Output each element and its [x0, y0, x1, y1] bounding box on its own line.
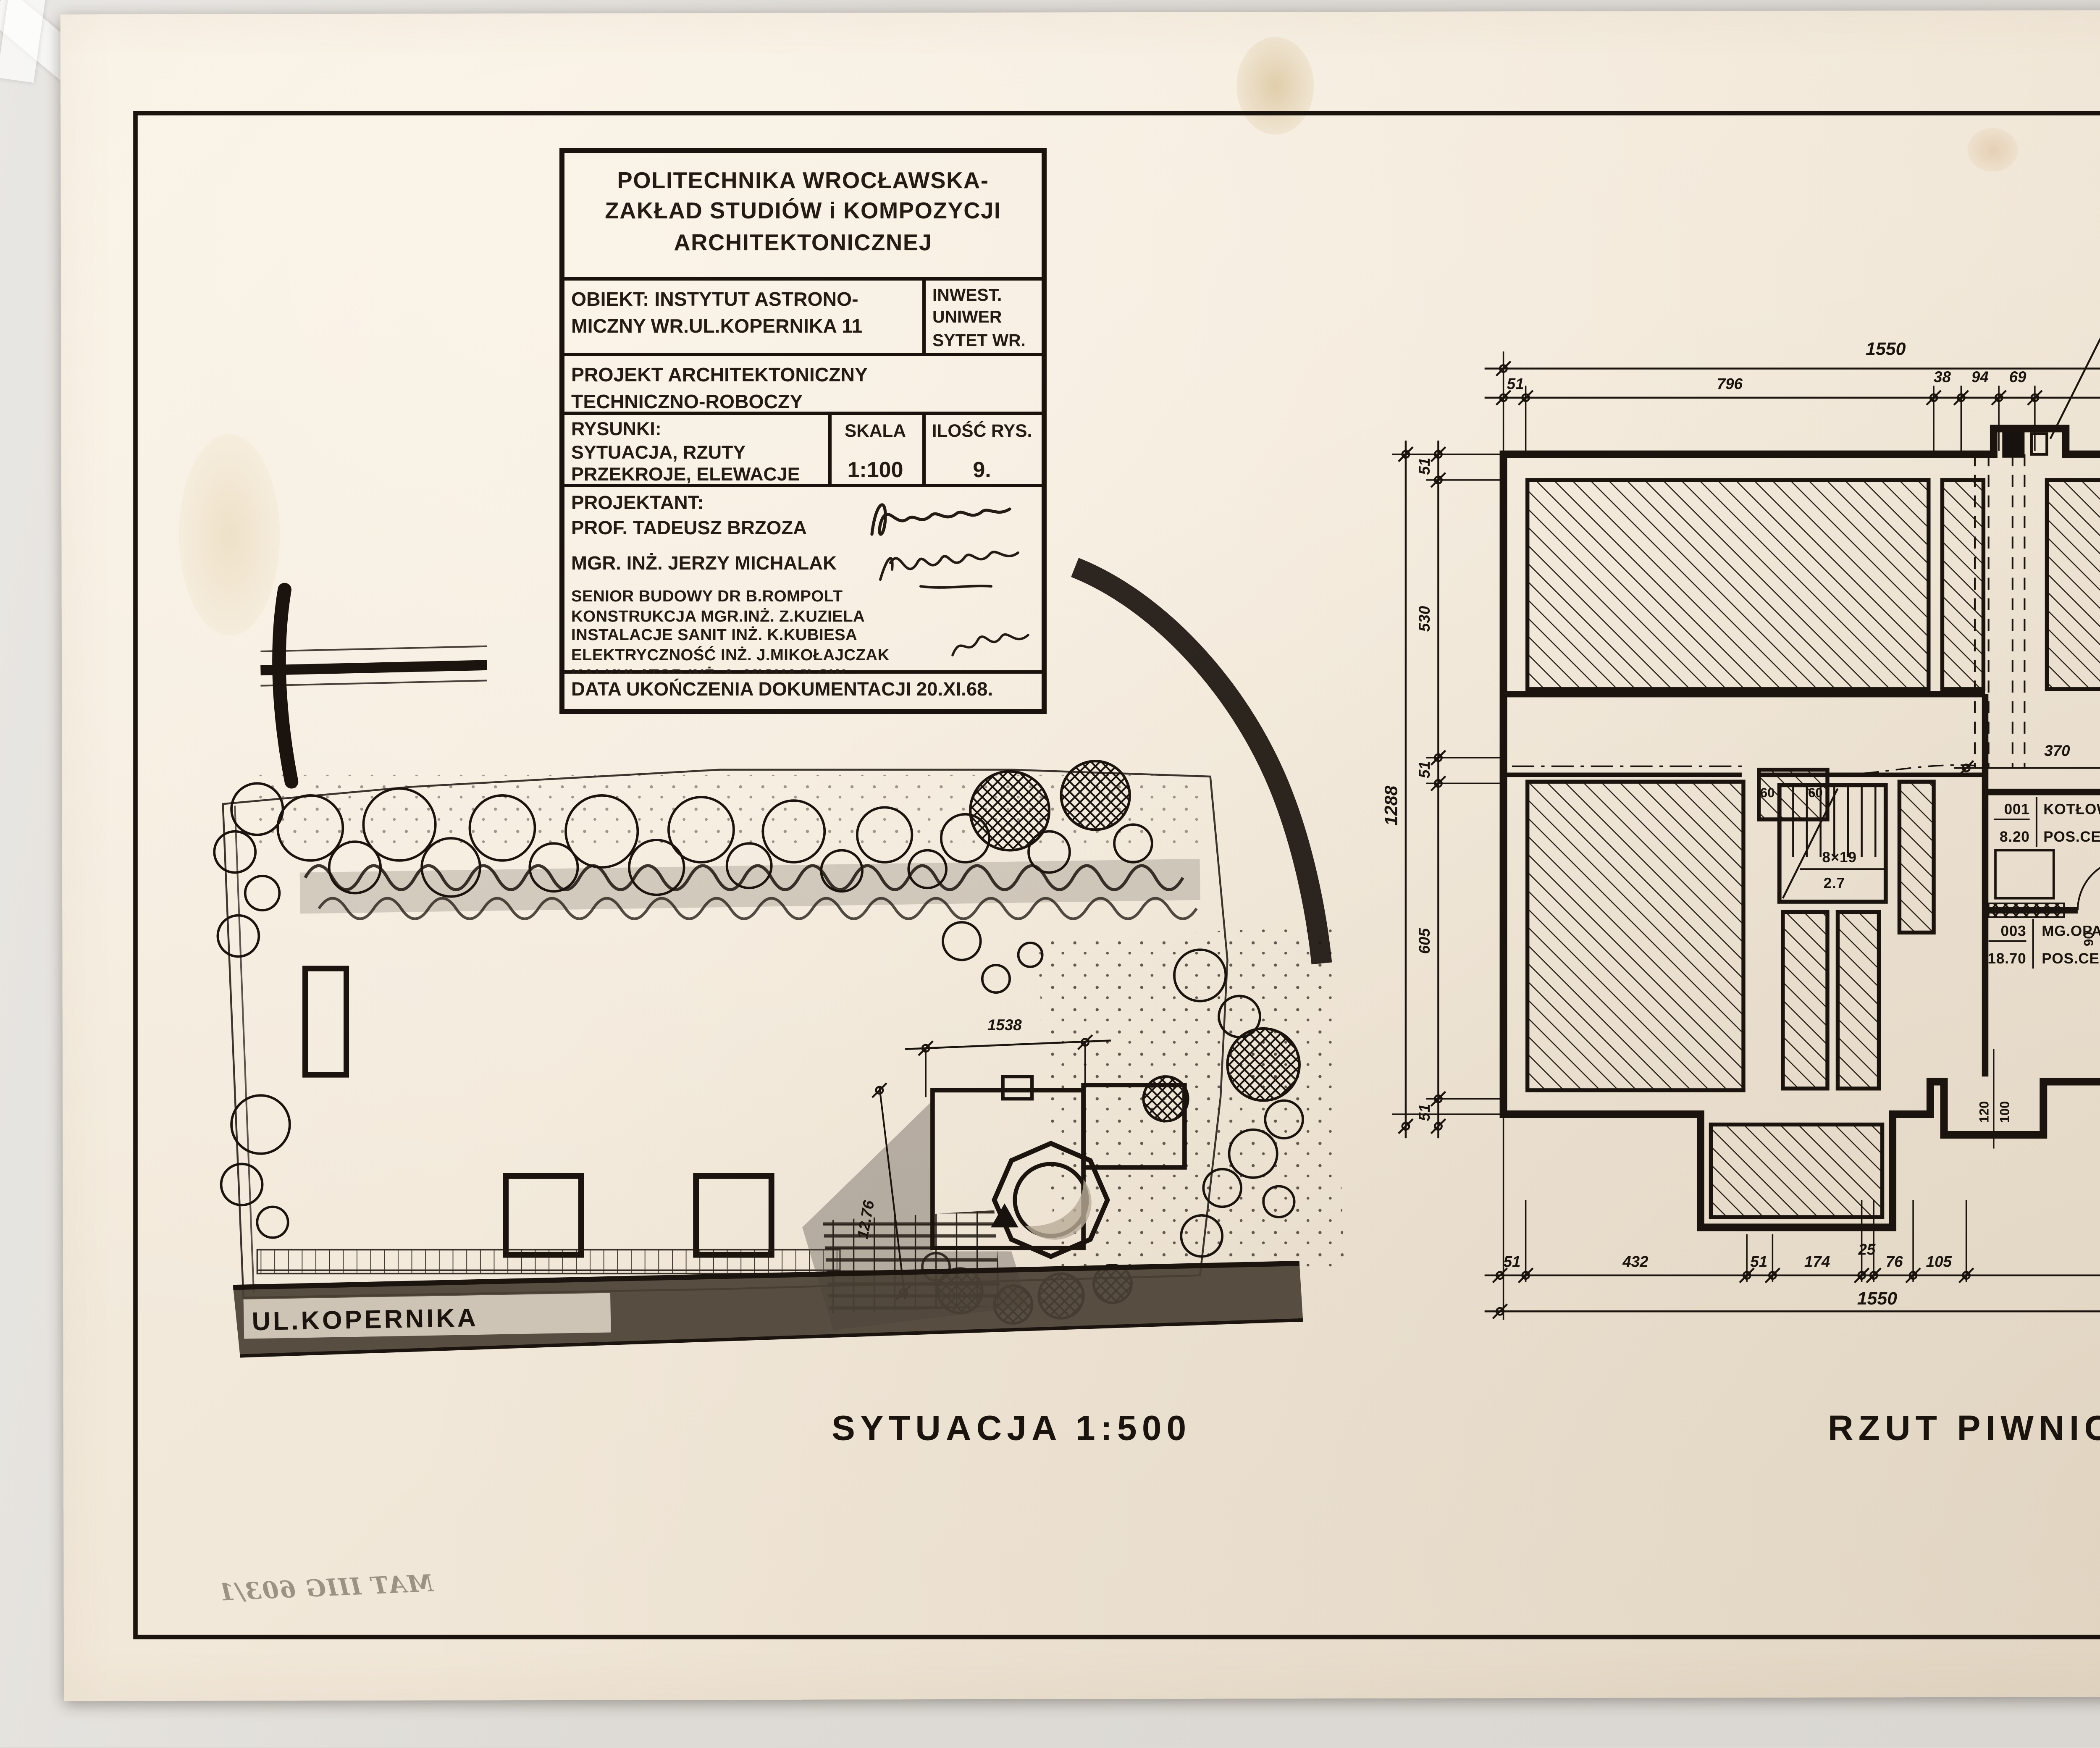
- svg-text:25: 25: [1858, 1241, 1875, 1258]
- svg-text:51: 51: [1416, 761, 1433, 778]
- svg-text:796: 796: [1717, 375, 1743, 393]
- svg-text:51: 51: [1416, 1104, 1433, 1121]
- investor-cell: INWEST. UNIWER SYTET WR.: [926, 281, 1042, 356]
- svg-text:1288: 1288: [1381, 786, 1402, 826]
- dims-left: 51 530 51 605 51 1288: [1381, 441, 1504, 1138]
- vent-shaft: [2032, 434, 2047, 454]
- institution-header: POLITECHNIKA WROCŁAWSKA- ZAKŁAD STUDIÓW …: [564, 153, 1042, 259]
- svg-text:003: 003: [2000, 923, 2026, 940]
- count-label: ILOŚĆ RYS.: [922, 415, 1042, 442]
- object-line: MICZNY WR.UL.KOPERNIKA 11: [571, 314, 922, 340]
- street: UL.KOPERNIKA: [233, 1263, 1303, 1356]
- room-001-label: 001 KOTŁOWNIA 8.20 POS.CEM.: [1994, 797, 2100, 847]
- drawings-cell: RYSUNKI: SYTUACJA, RZUTY PRZEKROJE, ELEW…: [564, 415, 828, 487]
- scanned-architectural-drawing: RYS. NR. 1: [0, 0, 2100, 1748]
- project-line: PROJEKT ARCHITEKTONICZNY: [571, 363, 1042, 390]
- signature-brzoza: [858, 491, 1026, 548]
- signature-mikolajczak: [948, 628, 1035, 665]
- site-plan-title: SYTUACJA 1:500: [832, 1408, 1191, 1448]
- outbuilding-2: [696, 1176, 772, 1255]
- svg-text:90: 90: [2082, 932, 2096, 946]
- hatched-rooms: [1528, 480, 2100, 1217]
- plot-boundary-inner: [235, 806, 254, 1292]
- svg-text:605: 605: [1416, 928, 1433, 954]
- object-cell: OBIEKT: INSTYTUT ASTRONO- MICZNY WR.UL.K…: [564, 281, 922, 356]
- svg-text:120: 120: [1977, 1101, 1992, 1123]
- institution-line: POLITECHNIKA WROCŁAWSKA-: [564, 166, 1042, 197]
- investor-line: SYTET WR.: [932, 330, 1042, 352]
- drawings-label: RYSUNKI:: [571, 420, 828, 443]
- count-value: 9.: [922, 442, 1042, 482]
- svg-text:1550: 1550: [1857, 1289, 1897, 1309]
- object-line: OBIEKT: INSTYTUT ASTRONO-: [571, 287, 922, 314]
- roof-notch: [1003, 1076, 1032, 1099]
- drawings-line: PRZEKROJE, ELEWACJE: [571, 466, 828, 487]
- road-west-bar: [260, 665, 487, 670]
- drawings-line: SYTUACJA, RZUTY: [571, 443, 828, 466]
- floor-plan: KOMIN 20×77; WENTYLACJA 14×14: [1381, 311, 2100, 1447]
- stair-note: 8×19: [1822, 849, 1856, 866]
- duct-label: 60: [1808, 785, 1822, 800]
- svg-text:8.20: 8.20: [2000, 829, 2030, 845]
- institution-line: ARCHITEKTONICZNEJ: [564, 228, 1042, 259]
- completion-date: DATA UKOŃCZENIA DOKUMENTACJI 20.XI.68.: [571, 680, 1042, 701]
- svg-text:174: 174: [1804, 1253, 1830, 1270]
- svg-text:18.70: 18.70: [1988, 950, 2026, 967]
- svg-text:51: 51: [1750, 1253, 1767, 1270]
- street-name: UL.KOPERNIKA: [252, 1303, 479, 1336]
- svg-text:POS.CEM.: POS.CEM.: [2042, 950, 2100, 967]
- floor-plan-title: RZUT PIWNIC 1:100: [1828, 1408, 2100, 1448]
- project-line: TECHNICZNO-ROBOCZY: [571, 390, 1042, 415]
- outbuilding-1: [506, 1176, 581, 1255]
- interior-dim: 370 6. 210: [1954, 737, 2100, 775]
- outbuilding-west: [305, 968, 346, 1075]
- institution-line: ZAKŁAD STUDIÓW i KOMPOZYCJI: [564, 197, 1042, 228]
- sheet-count-cell: ILOŚĆ RYS. 9.: [922, 415, 1042, 487]
- svg-text:105: 105: [1926, 1253, 1952, 1270]
- chimney-flue: [2002, 432, 2024, 458]
- svg-text:432: 432: [1622, 1253, 1648, 1270]
- svg-text:001: 001: [2004, 801, 2030, 818]
- drawing-canvas: RYS. NR. 1: [0, 0, 2100, 1748]
- title-block: POLITECHNIKA WROCŁAWSKA- ZAKŁAD STUDIÓW …: [559, 148, 1047, 714]
- scale-label: SKALA: [828, 415, 922, 442]
- staff-line: KALKULATOR INŻ. A. MICHAJŁOW: [571, 667, 1042, 674]
- svg-text:51: 51: [1416, 458, 1433, 475]
- staff-line: KONSTRUKCJA MGR.INŻ. Z.KUZIELA: [571, 608, 1042, 627]
- svg-text:POS.CEM.: POS.CEM.: [2043, 829, 2100, 845]
- svg-text:69: 69: [2009, 368, 2026, 386]
- date-cell: DATA UKOŃCZENIA DOKUMENTACJI 20.XI.68.: [564, 674, 1042, 709]
- svg-text:KOTŁOWNIA: KOTŁOWNIA: [2043, 801, 2100, 818]
- svg-text:100: 100: [1998, 1101, 2012, 1123]
- paved-walkway: [257, 1249, 840, 1273]
- svg-text:38: 38: [1934, 368, 1951, 386]
- svg-text:51: 51: [1504, 1253, 1521, 1270]
- svg-text:370: 370: [2044, 742, 2070, 759]
- svg-text:76: 76: [1886, 1253, 1903, 1270]
- svg-text:1550: 1550: [1866, 339, 1906, 359]
- scale-value: 1:100: [828, 442, 922, 482]
- chimney-leader: [2050, 331, 2100, 439]
- investor-line: INWEST.: [932, 286, 1042, 308]
- scale-cell: SKALA 1:100: [828, 415, 922, 487]
- svg-text:1538: 1538: [987, 1016, 1022, 1034]
- svg-text:530: 530: [1416, 606, 1433, 632]
- svg-text:94: 94: [1971, 368, 1989, 386]
- project-type-cell: PROJEKT ARCHITEKTONICZNY TECHNICZNO-ROBO…: [564, 356, 1042, 415]
- duct-label: 60: [1760, 785, 1774, 800]
- svg-text:51: 51: [1507, 375, 1524, 393]
- door: [1989, 852, 2100, 917]
- investor-line: UNIWER: [932, 308, 1042, 330]
- svg-text:2.7: 2.7: [1824, 875, 1845, 891]
- staff-line: SENIOR BUDOWY DR B.ROMPOLT: [571, 588, 1042, 608]
